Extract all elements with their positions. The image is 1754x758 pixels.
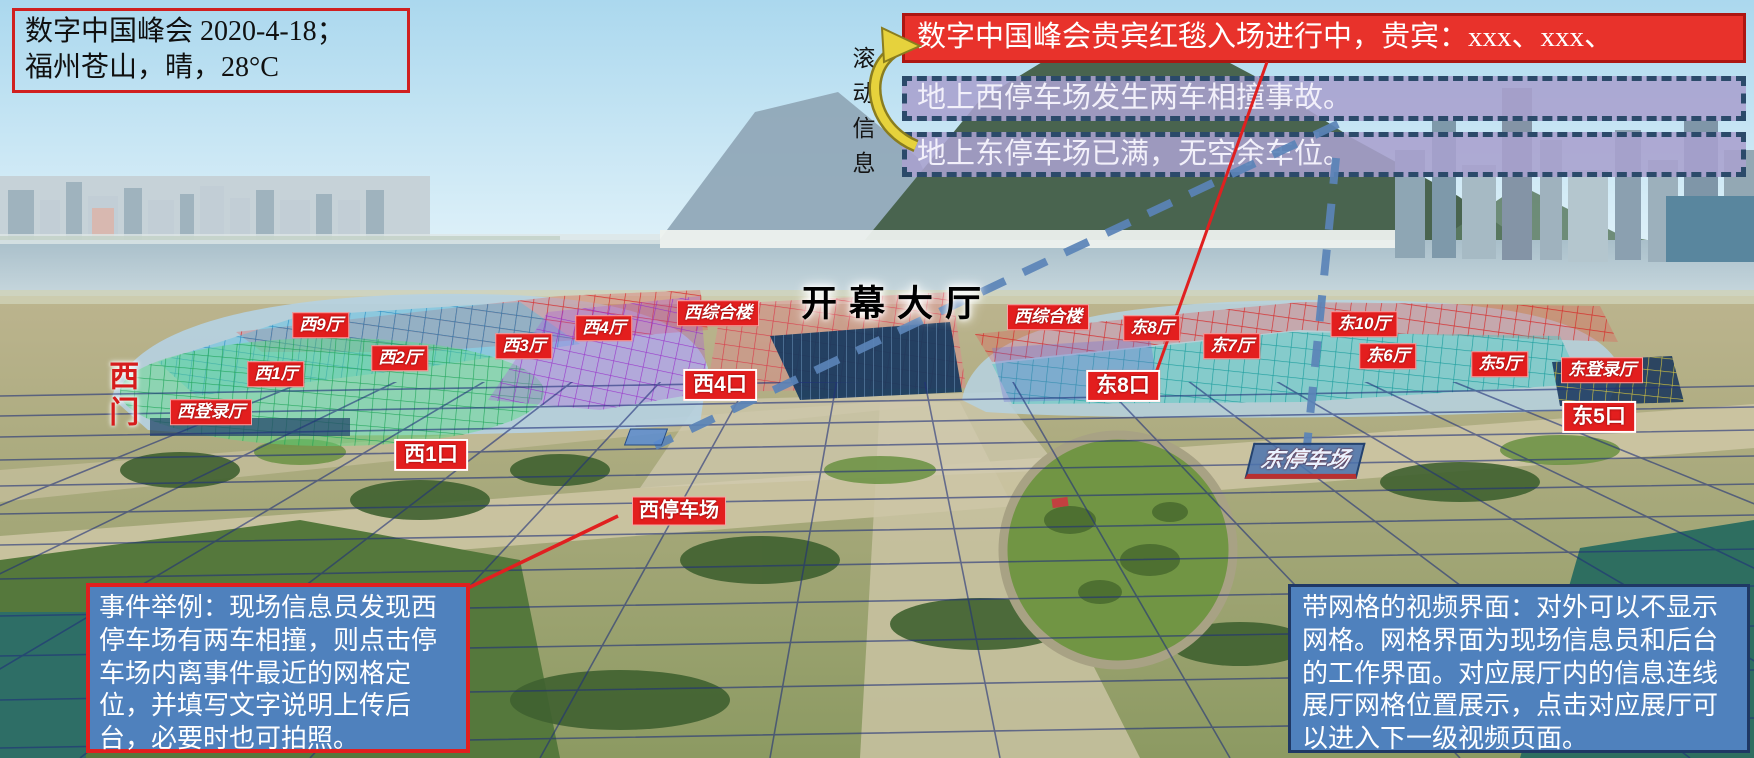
label-east-hall-7[interactable]: 东7厅 [1203,333,1260,359]
label-west-complex[interactable]: 西综合楼 [677,300,759,326]
label-west-hall-3[interactable]: 西3厅 [495,333,552,359]
label-east-hall-6[interactable]: 东6厅 [1359,343,1416,369]
label-west-hall-4[interactable]: 西4厅 [575,315,632,341]
label-east-gate-8[interactable]: 东8口 [1086,370,1160,402]
label-west-hall-2[interactable]: 西2厅 [371,345,428,371]
map-label-layer: 西9厅西2厅西1厅西3厅西4厅西综合楼开幕大厅西综合楼东8厅东7厅东10厅东6厅… [0,0,1754,758]
west-parking-marker [624,429,668,446]
label-west-login-hall[interactable]: 西登录厅 [170,399,252,425]
label-west-gate[interactable]: 西门 [103,360,138,432]
label-west-gate-4[interactable]: 西4口 [683,369,757,401]
label-east-hall-8[interactable]: 东8厅 [1123,315,1180,341]
video-interface-mockup: 数字中国峰会 2020-4-18； 福州苍山，晴，28°C 滚动信息 数字中国峰… [0,0,1754,758]
label-west-hall-9[interactable]: 西9厅 [292,312,349,338]
label-opening-hall[interactable]: 开幕大厅 [801,282,993,323]
label-east-gate-5[interactable]: 东5口 [1562,401,1636,433]
label-west-parking[interactable]: 西停车场 [632,497,726,526]
label-east-hall-10[interactable]: 东10厅 [1331,311,1398,337]
label-west-complex-2[interactable]: 西综合楼 [1007,304,1089,330]
label-east-hall-5[interactable]: 东5厅 [1471,351,1528,377]
label-west-gate-1[interactable]: 西1口 [394,439,468,471]
label-west-hall-1[interactable]: 西1厅 [247,361,304,387]
label-east-parking[interactable]: 东停车场 [1244,443,1365,479]
label-east-login-hall[interactable]: 东登录厅 [1561,357,1643,383]
